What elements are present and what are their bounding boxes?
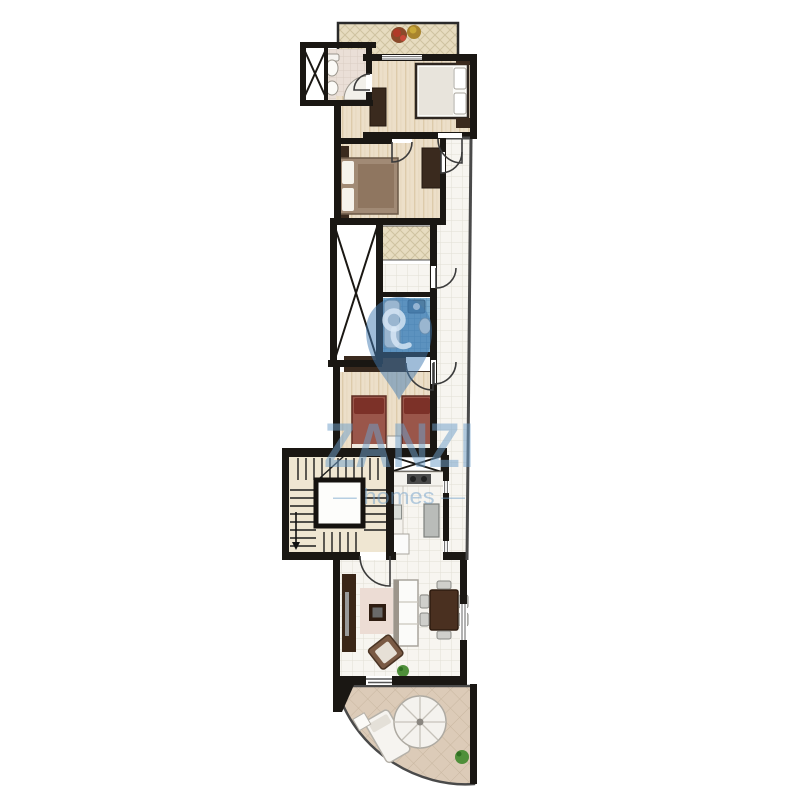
- wall: [282, 448, 289, 560]
- wall: [460, 640, 467, 685]
- pillow: [454, 68, 466, 89]
- wall: [470, 684, 477, 784]
- floor-plan: ZANZI — homes —: [0, 0, 800, 800]
- door-gap: [360, 552, 386, 560]
- bed-duvet: [358, 164, 394, 208]
- wall: [334, 100, 341, 224]
- wall: [390, 676, 466, 685]
- sliding-door: [366, 676, 392, 685]
- plant-icon: [397, 665, 409, 677]
- wall: [366, 90, 372, 106]
- flower-yellow-icon: [410, 27, 417, 34]
- floor-plan-page: ZANZI — homes —: [0, 0, 800, 800]
- hall-lobby: [382, 264, 432, 294]
- wall: [334, 138, 392, 144]
- window: [443, 541, 449, 552]
- plant-icon: [457, 752, 462, 757]
- plant-icon: [455, 750, 469, 764]
- wall: [460, 556, 467, 604]
- wall: [366, 48, 372, 76]
- pillow: [454, 93, 466, 114]
- chair: [420, 595, 429, 608]
- wall: [470, 54, 477, 139]
- chair: [437, 581, 451, 589]
- wall: [333, 556, 340, 682]
- coffee-table-top: [373, 608, 383, 618]
- nightstand: [456, 118, 470, 128]
- flower-red-icon: [393, 29, 401, 37]
- wall: [300, 42, 376, 48]
- window: [460, 604, 467, 640]
- plant-icon: [399, 667, 403, 671]
- wall: [300, 42, 306, 106]
- wardrobe: [422, 148, 442, 188]
- wardrobe: [370, 88, 386, 126]
- chair: [437, 631, 451, 639]
- chair: [420, 613, 429, 626]
- door-gap: [438, 133, 462, 138]
- flower-red-icon: [400, 35, 406, 41]
- pillow: [342, 161, 354, 184]
- umbrella-pole: [417, 719, 424, 726]
- fridge: [392, 534, 409, 554]
- dining-table: [430, 590, 458, 630]
- wall: [378, 292, 436, 297]
- wall: [334, 218, 446, 225]
- wall: [324, 48, 328, 102]
- watermark-brand-text: ZANZI: [324, 411, 474, 481]
- umbrella: [394, 696, 446, 748]
- lattice-court: [382, 226, 432, 260]
- bed-duvet: [419, 67, 453, 115]
- tv: [345, 592, 349, 636]
- wall: [330, 218, 337, 364]
- watermark-tagline-text: — homes —: [333, 484, 465, 509]
- pillow: [342, 188, 354, 211]
- door-gap: [392, 139, 412, 143]
- sofa-back: [394, 580, 399, 646]
- wall: [282, 552, 360, 560]
